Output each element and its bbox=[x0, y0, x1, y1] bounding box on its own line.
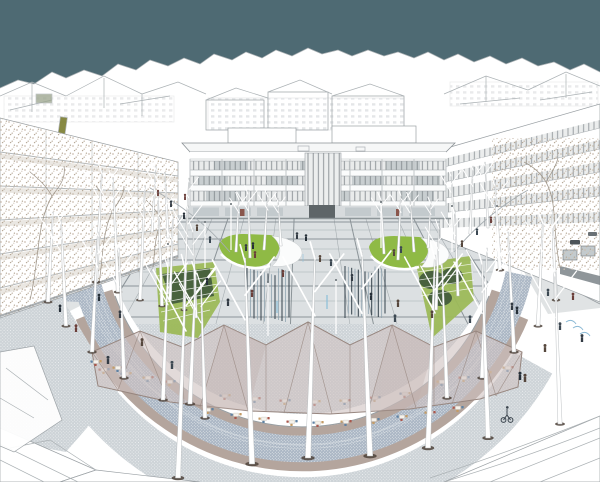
person-head bbox=[581, 334, 584, 337]
person-head bbox=[397, 300, 400, 303]
door-accent bbox=[240, 209, 245, 216]
cafe-table bbox=[315, 421, 320, 424]
cafe-chair bbox=[230, 413, 232, 415]
pole-lamp bbox=[267, 281, 269, 283]
person-head bbox=[370, 293, 373, 296]
person-head bbox=[523, 374, 526, 377]
person-head bbox=[400, 246, 403, 249]
center-far-windows bbox=[208, 98, 404, 130]
penthouse bbox=[228, 128, 296, 143]
person-head bbox=[330, 259, 333, 262]
cafe-chair bbox=[99, 360, 101, 362]
pole-lamp bbox=[496, 205, 498, 207]
person-head bbox=[75, 324, 78, 327]
cafe-chair bbox=[295, 420, 297, 422]
cafe-chair bbox=[112, 366, 114, 368]
person-head bbox=[547, 289, 550, 292]
roof-slab bbox=[182, 143, 455, 152]
person-head bbox=[170, 201, 172, 203]
pole-lamp bbox=[335, 279, 337, 281]
pole-lamp bbox=[451, 205, 453, 207]
cafe-chair bbox=[258, 417, 260, 419]
person-head bbox=[296, 232, 299, 235]
person-head bbox=[206, 278, 209, 281]
person-head bbox=[98, 294, 101, 297]
cafe-table bbox=[371, 418, 376, 421]
person-head bbox=[196, 224, 198, 226]
person-head bbox=[319, 255, 322, 258]
right-far-windows bbox=[450, 82, 598, 106]
person-head bbox=[351, 274, 354, 277]
cafe-chair bbox=[90, 360, 92, 362]
person-head bbox=[572, 293, 575, 296]
cafe-chair bbox=[239, 413, 241, 415]
pole-lamp bbox=[380, 201, 382, 203]
cafe-table bbox=[399, 415, 404, 418]
roof-garden bbox=[36, 94, 52, 103]
cafe-chair bbox=[344, 424, 346, 426]
pole-lamp bbox=[230, 203, 232, 205]
cafe-table bbox=[115, 366, 120, 369]
person-head bbox=[431, 310, 434, 313]
person-head bbox=[490, 216, 492, 218]
cafe-chair bbox=[456, 410, 458, 412]
cafe-chair bbox=[452, 406, 454, 408]
cafe-chair bbox=[433, 411, 435, 413]
cafe-chair bbox=[400, 419, 402, 421]
person-head bbox=[106, 356, 109, 359]
pole-lamp bbox=[167, 243, 169, 245]
person-head bbox=[252, 242, 255, 245]
person-head bbox=[245, 244, 248, 247]
person-head bbox=[476, 228, 479, 231]
person-head bbox=[251, 290, 254, 293]
cafe-chair bbox=[116, 370, 118, 372]
person-head bbox=[394, 314, 397, 317]
cafe-chair bbox=[321, 421, 323, 423]
cafe-chair bbox=[312, 421, 314, 423]
penthouse bbox=[332, 126, 416, 143]
person-head bbox=[516, 306, 519, 309]
cafe-chair bbox=[349, 420, 351, 422]
cafe-table bbox=[289, 420, 294, 423]
cafe-table bbox=[261, 417, 266, 420]
person-head bbox=[393, 249, 396, 252]
cafe-chair bbox=[372, 422, 374, 424]
person-head bbox=[119, 310, 122, 313]
cafe-chair bbox=[316, 425, 318, 427]
person-head bbox=[305, 234, 308, 237]
cafe-chair bbox=[461, 406, 463, 408]
entrance bbox=[309, 205, 335, 218]
cafe-chair bbox=[340, 420, 342, 422]
cafe-chair bbox=[262, 421, 264, 423]
pole-lamp bbox=[204, 221, 206, 223]
person-head bbox=[518, 372, 521, 375]
cafe-chair bbox=[290, 424, 292, 426]
cafe-table bbox=[233, 413, 238, 416]
plaza-rendering bbox=[0, 0, 600, 482]
cafe-table bbox=[93, 360, 98, 363]
cafe-table bbox=[343, 420, 348, 423]
person-head bbox=[183, 213, 185, 215]
person-head bbox=[559, 322, 562, 325]
center-bay-glazing bbox=[305, 153, 341, 206]
person-head bbox=[544, 344, 547, 347]
cafe-chair bbox=[211, 408, 213, 410]
person-head bbox=[511, 303, 514, 306]
person-head bbox=[282, 270, 285, 273]
person-head bbox=[254, 251, 257, 254]
person-head bbox=[461, 240, 464, 243]
cafe-chair bbox=[377, 418, 379, 420]
person-head bbox=[141, 338, 144, 341]
person-head bbox=[227, 299, 230, 302]
person-head bbox=[59, 304, 62, 307]
cafe-chair bbox=[234, 417, 236, 419]
left-far-windows bbox=[4, 96, 174, 122]
person-head bbox=[184, 194, 186, 196]
cafe-chair bbox=[267, 417, 269, 419]
cafe-table bbox=[455, 406, 460, 409]
person-head bbox=[157, 190, 159, 192]
cafe-chair bbox=[286, 420, 288, 422]
person-head bbox=[170, 361, 173, 364]
cafe-chair bbox=[405, 415, 407, 417]
cafe-chair bbox=[424, 411, 426, 413]
cafe-chair bbox=[396, 415, 398, 417]
person-head bbox=[469, 315, 472, 318]
cafe-chair bbox=[94, 364, 96, 366]
person-head bbox=[209, 236, 212, 239]
rendering-canvas bbox=[0, 0, 600, 482]
